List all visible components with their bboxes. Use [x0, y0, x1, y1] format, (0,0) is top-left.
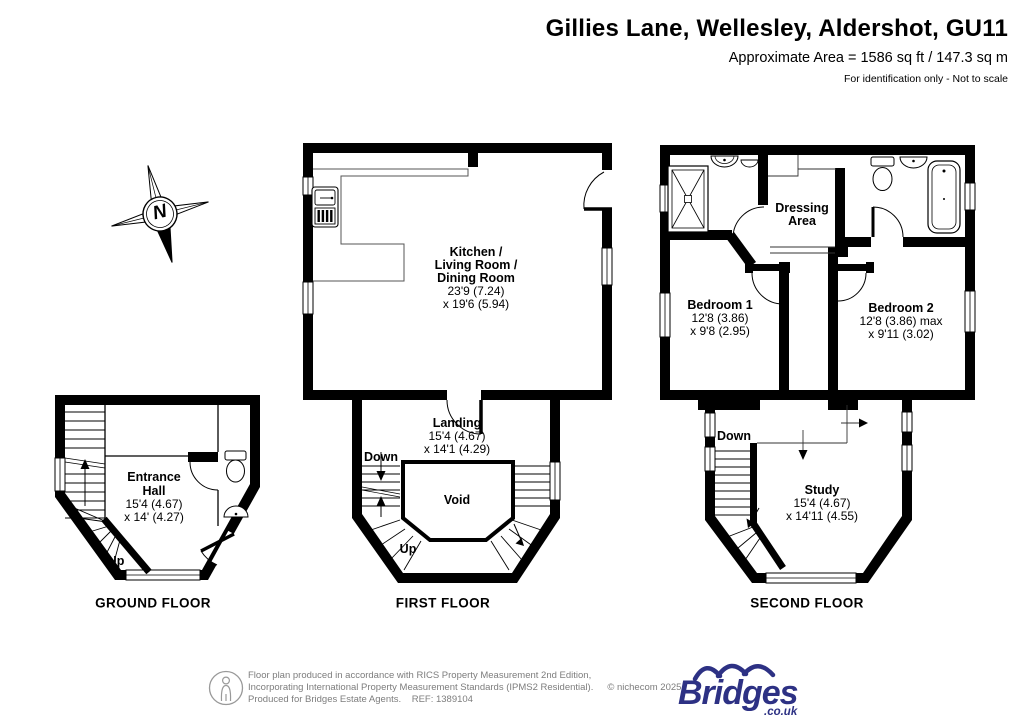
- disclaimer: Floor plan produced in accordance with R…: [248, 670, 684, 707]
- hob-icon: [315, 208, 335, 224]
- floorplan-page: Gillies Lane, Wellesley, Aldershot, GU11…: [0, 0, 1024, 724]
- floor-label-ground: GROUND FLOOR: [95, 596, 211, 611]
- room-label-kitchen: Dining Room: [437, 272, 515, 285]
- room-dim: 15'4 (4.67): [126, 498, 183, 510]
- room-label-landing: Landing: [433, 417, 482, 430]
- toilet-icon: [225, 451, 246, 482]
- room-dim: 15'4 (4.67): [794, 497, 851, 509]
- room-label-entrance-hall: Entrance: [127, 471, 181, 484]
- person-scale-icon: [206, 668, 246, 708]
- room-label-study: Study: [805, 484, 840, 497]
- room-label-kitchen: Kitchen /: [450, 246, 503, 259]
- stairs-down-label: Down: [364, 451, 398, 464]
- bridges-logo: Bridges .co.uk: [678, 655, 838, 721]
- header: Gillies Lane, Wellesley, Aldershot, GU11…: [546, 15, 1008, 85]
- staircase-ground: [65, 412, 149, 572]
- door: [838, 273, 866, 301]
- room-dim: 23'9 (7.24): [448, 285, 505, 297]
- stairs-up-label: Up: [108, 555, 125, 568]
- copyright: © nichecom 2025.: [607, 682, 684, 693]
- room-label-dressing-area: Dressing: [775, 202, 829, 215]
- identification-note: For identification only - Not to scale: [546, 73, 1008, 85]
- wall: [188, 452, 218, 462]
- disclaimer-line: Incorporating International Property Mea…: [248, 682, 684, 694]
- floorplan-drawing: [0, 0, 1024, 724]
- room-dim: x 14'11 (4.55): [786, 510, 858, 522]
- toilet-icon: [871, 157, 894, 191]
- stairs-down-label: Down: [717, 430, 751, 443]
- room-dim: x 19'6 (5.94): [443, 298, 509, 310]
- bridges-logo-suffix: .co.uk: [764, 706, 798, 718]
- room-label-kitchen: Living Room /: [435, 259, 518, 272]
- basin-icon: [900, 157, 927, 168]
- floor-label-first: FIRST FLOOR: [396, 596, 490, 611]
- door: [584, 170, 612, 210]
- disclaimer-line: Floor plan produced in accordance with R…: [248, 670, 684, 682]
- room-dim: x 9'8 (2.95): [690, 325, 750, 337]
- door: [733, 207, 764, 238]
- door: [871, 207, 903, 247]
- room-dim: x 9'11 (3.02): [868, 328, 933, 340]
- disclaimer-line: Produced for Bridges Estate Agents. REF:…: [248, 694, 684, 706]
- room-label-entrance-hall: Hall: [143, 485, 166, 498]
- room-dim: 15'4 (4.67): [429, 430, 486, 442]
- stairs-up-label: Up: [400, 543, 417, 556]
- room-dim: 12'8 (3.86) max: [860, 315, 943, 327]
- room-dim: x 14'1 (4.29): [424, 443, 490, 455]
- room-label-bedroom2: Bedroom 2: [868, 302, 933, 315]
- first-floor-plan: [303, 143, 612, 583]
- bathtub-icon: [928, 161, 960, 233]
- floor-label-second: SECOND FLOOR: [750, 596, 864, 611]
- room-label-bedroom1: Bedroom 1: [687, 299, 752, 312]
- wc-door: [190, 462, 218, 490]
- shower-icon: [668, 166, 708, 232]
- room-dim: x 14' (4.27): [124, 511, 184, 523]
- room-label-dressing-area: Area: [788, 215, 816, 228]
- door: [752, 273, 783, 304]
- page-title: Gillies Lane, Wellesley, Aldershot, GU11: [546, 15, 1008, 43]
- approximate-area: Approximate Area = 1586 sq ft / 147.3 sq…: [546, 50, 1008, 66]
- void-label: Void: [444, 494, 470, 507]
- room-dim: 12'8 (3.86): [692, 312, 749, 324]
- basin-icon: [711, 156, 758, 167]
